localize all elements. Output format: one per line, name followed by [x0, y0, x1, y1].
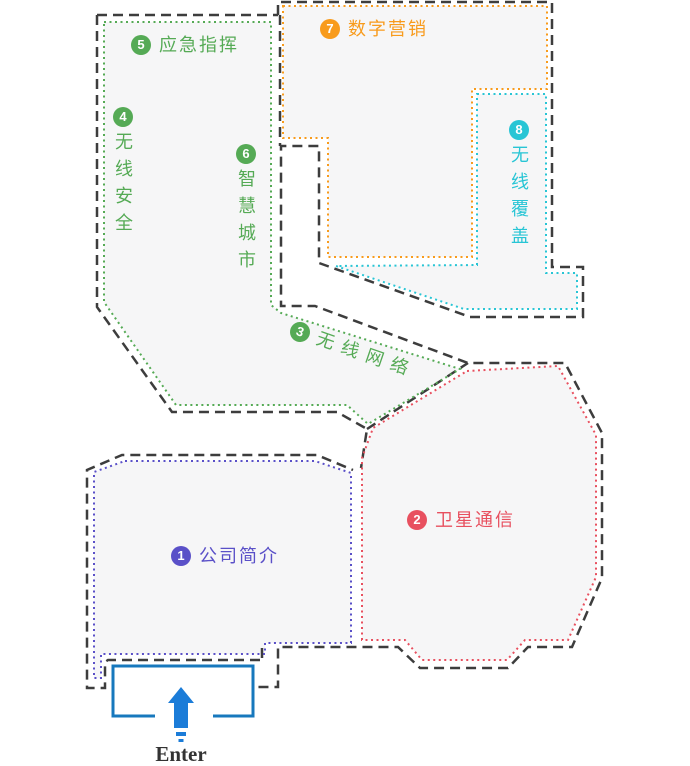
zone-5-badge: 5	[131, 35, 151, 55]
zone-label-company-intro[interactable]: 1 公司简介	[171, 546, 279, 566]
zone-label-satellite-comms[interactable]: 2 卫星通信	[407, 510, 515, 530]
zone-1-badge: 1	[171, 546, 191, 566]
entrance-arrow-icon	[168, 687, 194, 742]
zone-6-badge: 6	[236, 144, 256, 164]
zone-6-name: 智慧城市	[236, 169, 256, 277]
zone-2-badge: 2	[407, 510, 427, 530]
enter-label: Enter	[155, 742, 206, 766]
zone-label-digital-marketing[interactable]: 7 数字营销	[320, 19, 428, 39]
zone-4-name: 无线安全	[113, 132, 133, 240]
zone-8-name: 无线覆盖	[509, 145, 529, 253]
zone-label-wireless-security[interactable]: 4 无线安全	[112, 107, 134, 240]
zone-4-badge: 4	[113, 107, 133, 127]
zone-1-fill	[94, 461, 351, 678]
zone-label-emergency-command[interactable]: 5 应急指挥	[131, 35, 239, 55]
zone-7-badge: 7	[320, 19, 340, 39]
zone-2-name: 卫星通信	[435, 510, 515, 530]
zone-1-name: 公司简介	[199, 546, 279, 566]
floor-map: Enter 1 公司简介 2 卫星通信 3 无线网络 4 无线安全 5 应急指挥…	[0, 0, 690, 766]
floor-plan-svg: Enter	[0, 0, 690, 766]
zone-label-wireless-coverage[interactable]: 8 无线覆盖	[508, 120, 530, 253]
zone-8-badge: 8	[509, 120, 529, 140]
zone-label-smart-city[interactable]: 6 智慧城市	[235, 144, 257, 277]
zone-7-name: 数字营销	[348, 19, 428, 39]
zone-5-name: 应急指挥	[159, 35, 239, 55]
